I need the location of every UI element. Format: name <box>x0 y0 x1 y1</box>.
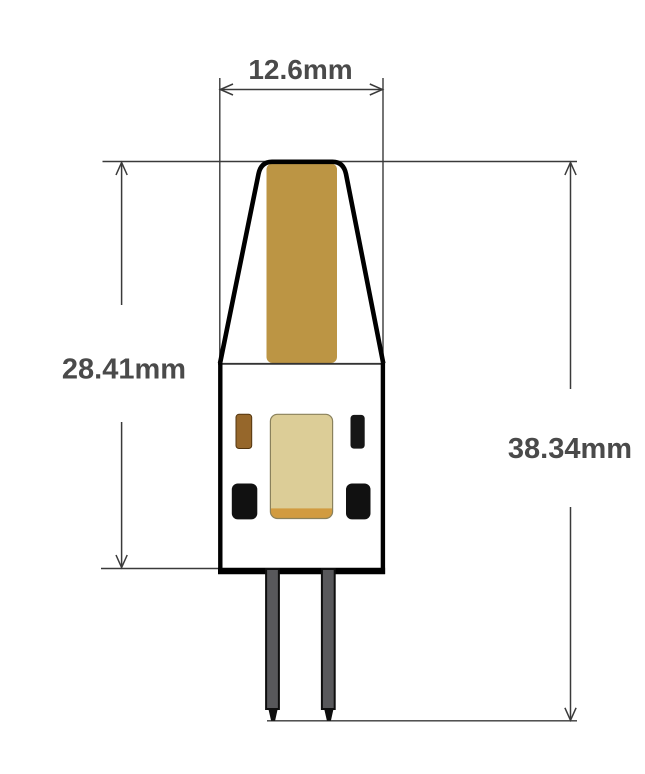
svg-text:38.34mm: 38.34mm <box>508 433 632 465</box>
svg-text:12.6mm: 12.6mm <box>248 54 352 85</box>
svg-text:28.41mm: 28.41mm <box>62 353 186 385</box>
